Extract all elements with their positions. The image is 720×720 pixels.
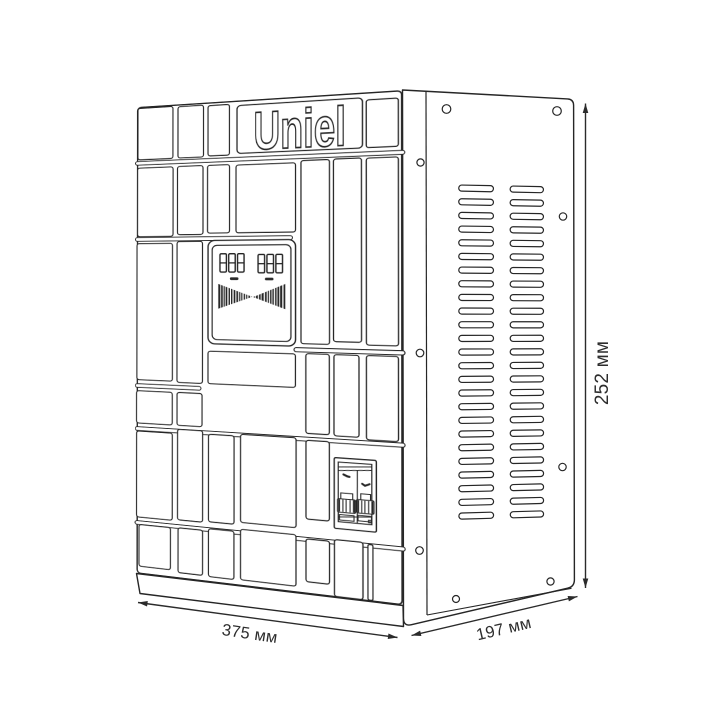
svg-text:375 мм: 375 мм (221, 621, 279, 647)
svg-text:252 мм: 252 мм (592, 341, 613, 405)
